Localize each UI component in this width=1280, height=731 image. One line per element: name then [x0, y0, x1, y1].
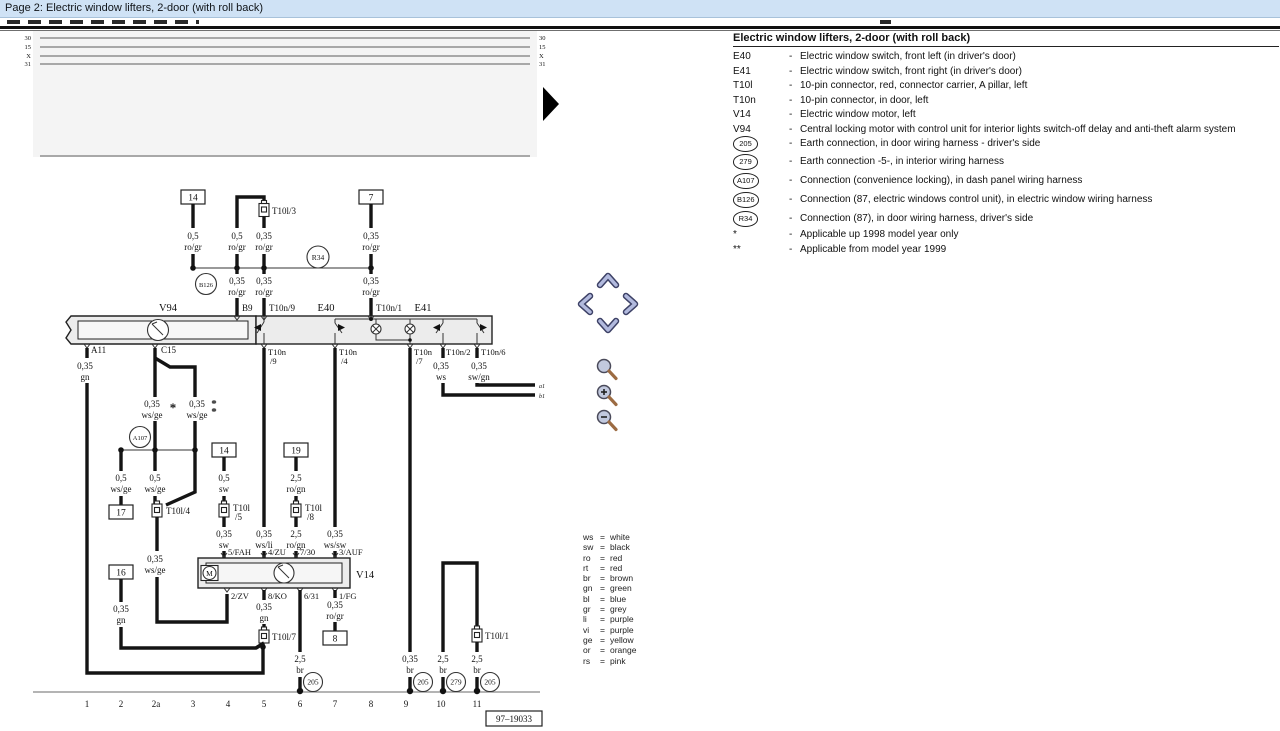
svg-text:7/30: 7/30 [300, 547, 315, 557]
legend-row-r34: R34-Connection (87), in door wiring harn… [733, 211, 1279, 227]
color-key-row-li: li=purple [583, 614, 636, 624]
svg-text:2: 2 [119, 699, 124, 709]
svg-text:0,5: 0,5 [218, 473, 230, 483]
page-continuation-marker [543, 87, 559, 121]
legend-row-doublestar: **-Applicable from model year 1999 [733, 244, 1279, 255]
svg-text:279: 279 [450, 678, 462, 687]
svg-text:0,35: 0,35 [256, 529, 272, 539]
terminal-box-14a: 14 [181, 190, 205, 204]
svg-text:T10n/6: T10n/6 [481, 347, 506, 357]
svg-text:3/AUF: 3/AUF [339, 547, 363, 557]
svg-text:ro/gr: ro/gr [362, 287, 380, 297]
legend-row-b126: B126-Connection (87, electric windows co… [733, 192, 1279, 208]
svg-text:4: 4 [226, 699, 231, 709]
connection-symbol-b126: B126 [733, 192, 759, 208]
svg-text:14: 14 [219, 447, 229, 457]
legend-row-e40: E40-Electric window switch, front left (… [733, 51, 1279, 62]
component-label-v94: V94 [159, 303, 178, 314]
component-v14: M V14 [198, 558, 375, 588]
svg-text:5/FAH: 5/FAH [228, 547, 251, 557]
legend-row-t10n: T10n-10-pin connector, in door, left [733, 95, 1279, 106]
svg-text:sw: sw [219, 484, 230, 494]
diagram-reference-number: 97–19033 [486, 711, 542, 726]
svg-text:97–19033: 97–19033 [496, 714, 533, 724]
svg-text:0,35: 0,35 [77, 361, 93, 371]
svg-text:0,35: 0,35 [402, 654, 418, 664]
color-key-row-sw: sw=black [583, 542, 636, 552]
svg-text:gn: gn [81, 372, 91, 382]
svg-text:T10l/7: T10l/7 [272, 632, 296, 642]
svg-text:6: 6 [298, 699, 303, 709]
color-key-row-rs: rs=pink [583, 656, 636, 666]
svg-text:R34: R34 [312, 253, 325, 262]
wire-box19: 19 2,5 ro/gn T10l /8 2,5 ro/gn [284, 443, 322, 558]
svg-text:0,35: 0,35 [256, 231, 272, 241]
svg-text:17: 17 [116, 509, 126, 519]
svg-text:T10l/3: T10l/3 [272, 206, 296, 216]
color-key-row-rt: rt=red [583, 563, 636, 573]
svg-text:2,5: 2,5 [290, 529, 302, 539]
svg-text:0,5: 0,5 [187, 231, 199, 241]
svg-text:M: M [206, 569, 213, 578]
svg-text:0,5: 0,5 [231, 231, 243, 241]
wire-color-key: ws=white sw=black ro=red rt=red br=brown… [583, 532, 636, 666]
terminal-label-a11: A11 [91, 345, 106, 355]
svg-text:T10n/2: T10n/2 [446, 347, 471, 357]
wire-box14b: 14 0,5 sw T10l /5 0,35 sw [212, 443, 250, 558]
bus-panel: 30 15 X 31 30 15 X 31 [25, 31, 560, 157]
terminal-label-b9: B9 [242, 303, 253, 313]
svg-text:/5: /5 [235, 512, 243, 522]
junction-line-r34: R34 B126 [190, 246, 374, 295]
svg-text:8: 8 [333, 635, 338, 645]
svg-text:0,35: 0,35 [229, 276, 245, 286]
pan-down-button[interactable] [600, 321, 616, 330]
svg-text:ro/gr: ro/gr [255, 242, 273, 252]
svg-text:2,5: 2,5 [471, 654, 483, 664]
svg-text:0,35: 0,35 [363, 276, 379, 286]
wire-track3-top: 0,5 ro/gr [184, 204, 202, 268]
svg-text:0,35: 0,35 [327, 600, 343, 610]
earth-symbol-205: 205 [733, 136, 758, 152]
diagram-baseline: 205 205 279 205 [33, 673, 540, 695]
svg-text:ro/gn: ro/gn [287, 484, 306, 494]
wire-631-ground: 2,5 br [294, 590, 306, 692]
color-key-row-gn: gn=green [583, 583, 636, 593]
bus-label-15-right: 15 [539, 44, 546, 51]
color-key-row-ws: ws=white [583, 532, 636, 542]
connector-t10l3: T10l/3 0,35 ro/gr [255, 201, 296, 269]
bus-label-15-left: 15 [25, 44, 32, 51]
bus-label-30-right: 30 [539, 35, 546, 42]
junction-a107: A107 [118, 427, 198, 453]
terminal-label-c15: C15 [161, 345, 177, 355]
color-key-row-bl: bl=blue [583, 594, 636, 604]
svg-text:0,35: 0,35 [189, 399, 205, 409]
svg-text:ro/gr: ro/gr [362, 242, 380, 252]
earth-symbol-279: 279 [733, 154, 758, 170]
svg-text:0,35: 0,35 [363, 231, 379, 241]
pan-right-button[interactable] [626, 296, 635, 312]
svg-text:ro/gr: ro/gr [184, 242, 202, 252]
svg-text:2a: 2a [152, 699, 161, 709]
svg-text:/8: /8 [307, 512, 315, 522]
svg-text:br: br [406, 665, 414, 675]
legend-row-a107: A107-Connection (convenience locking), i… [733, 173, 1279, 189]
bus-label-x-right: X [539, 53, 544, 60]
wire-ground-u: 2,5 br T10l/1 2,5 br [437, 563, 509, 692]
track-numbers: 1 2 2a 3 4 5 6 7 8 9 10 11 [85, 699, 482, 709]
svg-text:0,35: 0,35 [471, 361, 487, 371]
legend-row-v14: V14-Electric window motor, left [733, 109, 1279, 120]
svg-text:205: 205 [307, 678, 319, 687]
svg-text:sw/gn: sw/gn [468, 372, 490, 382]
terminal-label-t10n9: T10n/9 [269, 303, 295, 313]
connection-symbol-a107: A107 [733, 173, 759, 189]
svg-text:ws: ws [436, 372, 446, 382]
legend-row-ground-205: 205-Earth connection, in door wiring har… [733, 136, 1279, 152]
legend-row-v94: V94-Central locking motor with control u… [733, 124, 1279, 135]
component-label-e41: E41 [415, 303, 432, 314]
component-label-e40: E40 [318, 303, 335, 314]
component-label-v14: V14 [356, 570, 375, 581]
component-e40-e41 [254, 316, 492, 344]
connection-symbol-r34: R34 [733, 211, 758, 227]
svg-text:2/ZV: 2/ZV [231, 591, 250, 601]
wire-track8-top: 0,35 ro/gr [362, 204, 380, 268]
wire-box17: 0,5 ws/ge 17 [109, 450, 133, 519]
svg-text:0,35: 0,35 [147, 554, 163, 564]
svg-text:10: 10 [437, 699, 447, 709]
legend-title: Electric window lifters, 2-door (with ro… [733, 32, 1279, 47]
continuation-label-b1: b1 [539, 394, 545, 400]
svg-text:16: 16 [116, 569, 126, 579]
svg-text:0,35: 0,35 [256, 276, 272, 286]
svg-text:0,35: 0,35 [327, 529, 343, 539]
svg-text:ro/gr: ro/gr [255, 287, 273, 297]
svg-text:ws/ge: ws/ge [187, 410, 208, 420]
wire-t10l4: 0,5 ws/ge T10l/4 0,35 ws/ge [145, 450, 228, 622]
color-key-row-or: or=orange [583, 645, 636, 655]
svg-text:ws/ge: ws/ge [111, 484, 132, 494]
wiring-diagram-viewer: Page 2: Electric window lifters, 2-door … [0, 0, 1280, 731]
svg-text:5: 5 [262, 699, 267, 709]
svg-text:0,35: 0,35 [433, 361, 449, 371]
svg-text:ro/gr: ro/gr [228, 287, 246, 297]
svg-text:br: br [473, 665, 481, 675]
wire-c15: 0,35 ws/ge * 0,35 ws/ge * * [142, 348, 218, 450]
zoom-reset-button[interactable] [598, 360, 617, 379]
svg-text:7: 7 [369, 194, 374, 204]
svg-text:3: 3 [191, 699, 196, 709]
svg-text:A107: A107 [133, 435, 148, 442]
zoom-controls [598, 360, 617, 430]
bus-label-31-left: 31 [25, 61, 32, 68]
bus-label-x-left: X [26, 53, 31, 60]
svg-text:19: 19 [291, 447, 301, 457]
svg-text:ro/gr: ro/gr [228, 242, 246, 252]
svg-text:2,5: 2,5 [290, 473, 302, 483]
wire-t10n7-long: 0,35 br [402, 348, 418, 692]
asterisk-double-bottom: * [211, 406, 217, 418]
asterisk-single: * [170, 400, 177, 415]
bus-label-30-left: 30 [25, 35, 32, 42]
svg-text:0,35: 0,35 [216, 529, 232, 539]
terminal-label-t10n1: T10n/1 [376, 303, 402, 313]
svg-text:/4: /4 [341, 356, 348, 366]
legend-row-ground-279: 279-Earth connection -5-, in interior wi… [733, 154, 1279, 170]
legend-row-star: *-Applicable up 1998 model year only [733, 229, 1279, 240]
pan-up-button[interactable] [600, 276, 616, 285]
svg-text:2,5: 2,5 [437, 654, 449, 664]
svg-text:205: 205 [484, 678, 496, 687]
svg-text:8: 8 [369, 699, 374, 709]
terminal-box-7: 7 [359, 190, 383, 204]
svg-text:/7: /7 [416, 356, 423, 366]
color-key-row-br: br=brown [583, 573, 636, 583]
svg-text:7: 7 [333, 699, 338, 709]
svg-text:14: 14 [188, 194, 198, 204]
e40-e41-bottom-stubs: T10n /9 T10n /4 T10n /7 T10n/2 T10n/6 [261, 344, 506, 366]
color-key-row-ge: ge=yellow [583, 635, 636, 645]
svg-text:0,5: 0,5 [115, 473, 127, 483]
svg-text:ws/ge: ws/ge [145, 484, 166, 494]
svg-text:205: 205 [417, 678, 429, 687]
svg-text:1: 1 [85, 699, 90, 709]
svg-text:0,35: 0,35 [144, 399, 160, 409]
pan-left-button[interactable] [581, 296, 590, 312]
wire-zu-long: 0,35 ws/li [255, 348, 273, 558]
color-key-row-gr: gr=grey [583, 604, 636, 614]
svg-text:9: 9 [404, 699, 409, 709]
legend-row-t10l: T10l-10-pin connector, red, connector ca… [733, 80, 1279, 91]
wire-t10n6-exit: 0,35 sw/gn a1 [468, 348, 545, 390]
svg-text:gn: gn [117, 615, 127, 625]
svg-text:0,5: 0,5 [149, 473, 161, 483]
svg-text:B126: B126 [199, 282, 214, 289]
color-key-row-vi: vi=purple [583, 625, 636, 635]
wire-auf-long: 0,35 ws/sw [324, 348, 347, 558]
zoom-in-button[interactable] [598, 386, 617, 405]
legend-row-e41: E41-Electric window switch, front right … [733, 66, 1279, 77]
pan-controls [581, 276, 635, 330]
continuation-label-a1: a1 [539, 384, 545, 390]
svg-text:ws/ge: ws/ge [142, 410, 163, 420]
svg-text:/9: /9 [270, 356, 277, 366]
svg-text:0,35: 0,35 [256, 602, 272, 612]
svg-text:br: br [439, 665, 447, 675]
zoom-out-button[interactable] [598, 411, 617, 430]
svg-text:T10l/4: T10l/4 [166, 506, 190, 516]
svg-text:2,5: 2,5 [294, 654, 306, 664]
component-v94 [66, 316, 256, 344]
svg-text:T10l/1: T10l/1 [485, 631, 509, 641]
svg-text:6/31: 6/31 [304, 591, 319, 601]
svg-text:ws/ge: ws/ge [145, 565, 166, 575]
svg-text:br: br [296, 665, 304, 675]
svg-text:ro/gr: ro/gr [326, 611, 344, 621]
svg-text:4/ZU: 4/ZU [268, 547, 286, 557]
bus-label-31-right: 31 [539, 61, 546, 68]
color-key-row-ro: ro=red [583, 553, 636, 563]
svg-text:gn: gn [260, 613, 270, 623]
svg-text:11: 11 [473, 699, 482, 709]
svg-text:8/KO: 8/KO [268, 591, 287, 601]
svg-text:0,35: 0,35 [113, 604, 129, 614]
